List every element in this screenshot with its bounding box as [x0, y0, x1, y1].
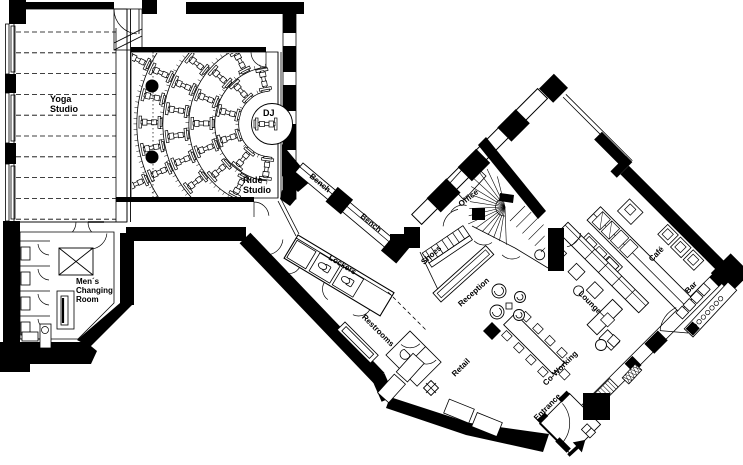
svg-text:Changing: Changing [76, 286, 113, 295]
svg-text:DJ: DJ [263, 108, 275, 118]
svg-text:Ride: Ride [243, 175, 263, 185]
svg-text:Room: Room [76, 295, 99, 304]
svg-text:Yoga: Yoga [50, 94, 72, 104]
svg-text:Studio: Studio [243, 185, 271, 195]
svg-text:Studio: Studio [50, 104, 78, 114]
svg-text:Men´s: Men´s [76, 277, 100, 286]
